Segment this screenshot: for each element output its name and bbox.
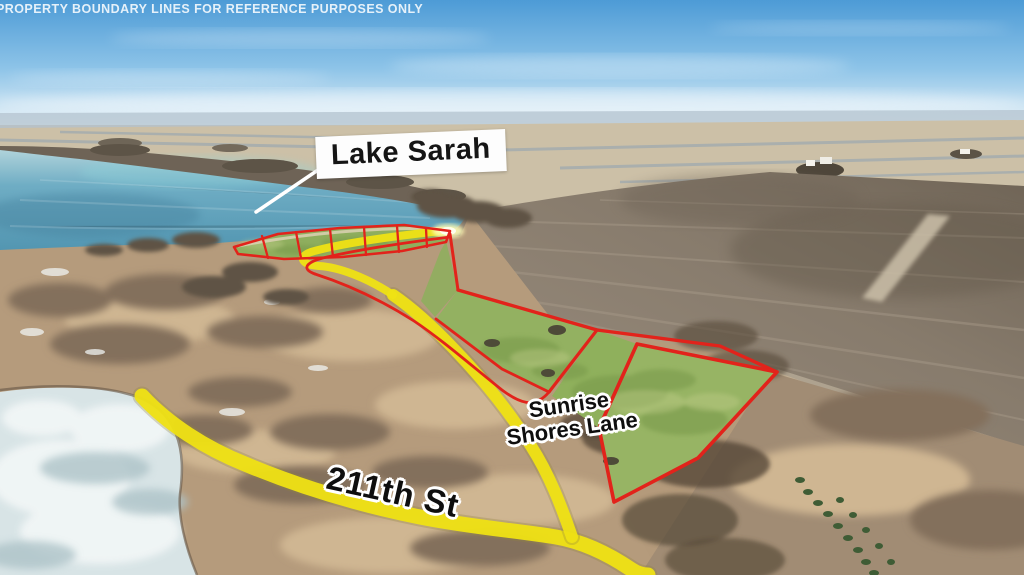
aerial-property-map: PROPERTY BOUNDARY LINES FOR REFERENCE PU…	[0, 0, 1024, 575]
lake-name-label: Lake Sarah	[315, 129, 506, 179]
field-dark-patch-2	[620, 174, 860, 226]
sky	[0, 0, 1024, 125]
aerial-photo-scene	[0, 0, 1024, 575]
disclaimer-text: PROPERTY BOUNDARY LINES FOR REFERENCE PU…	[0, 2, 423, 16]
